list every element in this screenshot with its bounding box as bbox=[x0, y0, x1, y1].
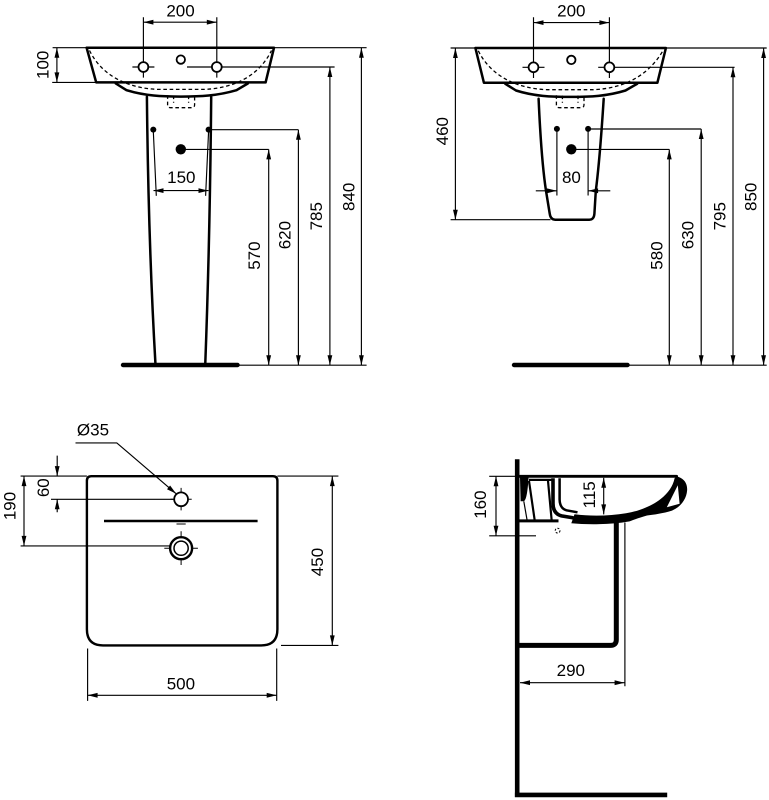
svg-text:850: 850 bbox=[742, 183, 761, 211]
svg-text:460: 460 bbox=[433, 117, 452, 145]
svg-text:Ø35: Ø35 bbox=[77, 420, 109, 439]
svg-text:200: 200 bbox=[557, 2, 585, 21]
svg-text:620: 620 bbox=[276, 221, 295, 249]
svg-text:190: 190 bbox=[0, 492, 19, 520]
svg-text:115: 115 bbox=[580, 481, 599, 508]
svg-text:200: 200 bbox=[166, 2, 194, 21]
svg-text:570: 570 bbox=[245, 241, 264, 269]
svg-text:60: 60 bbox=[34, 478, 53, 497]
svg-text:450: 450 bbox=[308, 548, 327, 576]
svg-text:630: 630 bbox=[679, 221, 698, 249]
svg-text:840: 840 bbox=[339, 183, 358, 211]
svg-text:290: 290 bbox=[557, 661, 585, 680]
svg-text:795: 795 bbox=[710, 202, 729, 230]
svg-text:785: 785 bbox=[307, 202, 326, 230]
svg-text:580: 580 bbox=[647, 241, 666, 269]
svg-text:160: 160 bbox=[471, 490, 490, 518]
svg-text:80: 80 bbox=[562, 168, 581, 187]
svg-text:500: 500 bbox=[167, 675, 195, 694]
svg-text:100: 100 bbox=[34, 51, 53, 79]
svg-text:150: 150 bbox=[167, 168, 195, 187]
